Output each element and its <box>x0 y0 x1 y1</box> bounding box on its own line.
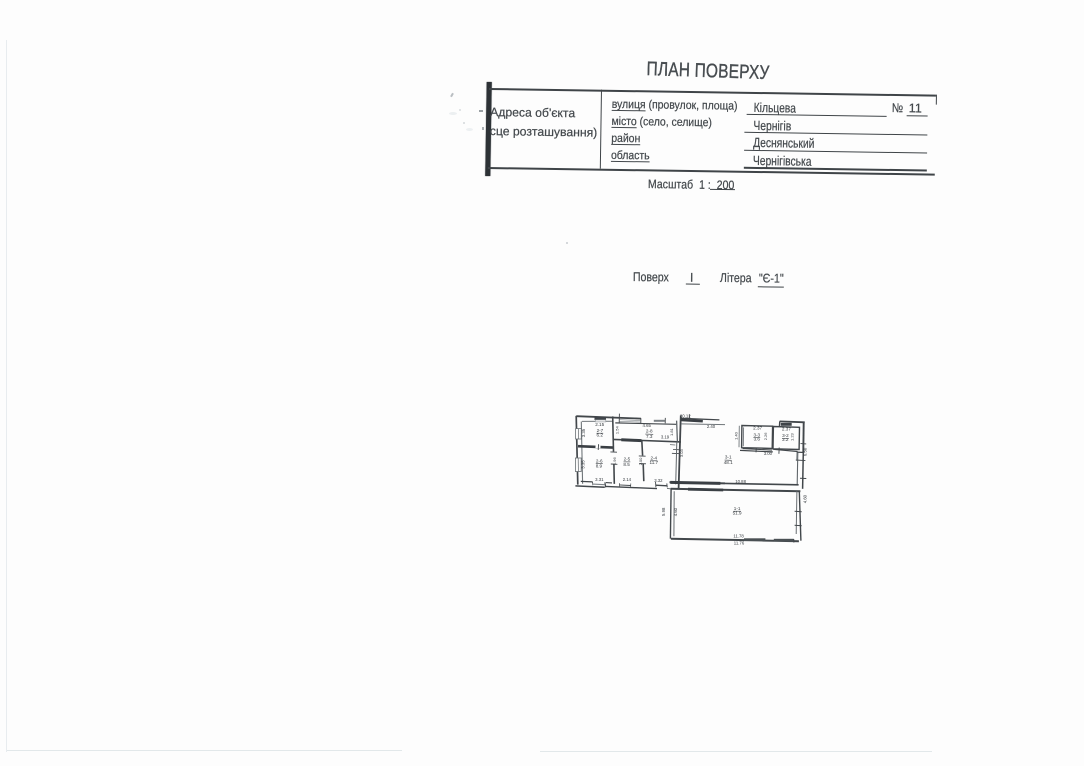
svg-text:3.31: 3.31 <box>595 477 604 482</box>
svg-text:1.81: 1.81 <box>669 427 674 436</box>
svg-text:2.14: 2.14 <box>623 477 632 482</box>
svg-text:4.60: 4.60 <box>673 507 678 516</box>
svg-text:2.37: 2.37 <box>782 427 791 432</box>
svg-text:11.76: 11.76 <box>734 541 745 546</box>
svg-text:3.32: 3.32 <box>654 478 663 483</box>
svg-text:48.1: 48.1 <box>724 460 733 465</box>
svg-text:11.78: 11.78 <box>733 533 744 538</box>
svg-text:2.40: 2.40 <box>707 424 716 429</box>
svg-text:1.23: 1.23 <box>790 432 795 441</box>
svg-text:10.88: 10.88 <box>735 479 746 484</box>
svg-text:3.35: 3.35 <box>581 460 586 469</box>
svg-text:8.9: 8.9 <box>596 464 603 469</box>
svg-text:2.26: 2.26 <box>763 432 768 441</box>
svg-text:7.3: 7.3 <box>646 434 653 439</box>
svg-text:3-1: 3-1 <box>725 455 732 460</box>
svg-text:2-6: 2-6 <box>596 458 603 463</box>
svg-text:4.65: 4.65 <box>643 423 652 428</box>
svg-text:1.54: 1.54 <box>615 426 620 435</box>
svg-text:2-5: 2-5 <box>624 457 631 462</box>
svg-text:8.5: 8.5 <box>623 462 630 467</box>
svg-text:3.00: 3.00 <box>764 451 773 456</box>
svg-text:2.00: 2.00 <box>638 457 643 466</box>
svg-text:2.37: 2.37 <box>753 426 762 431</box>
svg-text:5.98: 5.98 <box>661 507 666 516</box>
svg-text:6.50: 6.50 <box>802 447 807 456</box>
svg-text:3.35: 3.35 <box>581 428 586 437</box>
svg-text:1.96: 1.96 <box>612 457 617 466</box>
svg-text:2.15: 2.15 <box>595 422 604 427</box>
svg-text:4.60: 4.60 <box>803 494 808 503</box>
svg-text:3.2: 3.2 <box>782 437 789 442</box>
svg-text:20.12: 20.12 <box>680 414 691 419</box>
svg-text:3.03: 3.03 <box>679 449 684 458</box>
svg-text:2-8: 2-8 <box>646 429 653 434</box>
svg-text:3.6: 3.6 <box>754 436 761 441</box>
svg-text:1.40: 1.40 <box>733 431 738 440</box>
